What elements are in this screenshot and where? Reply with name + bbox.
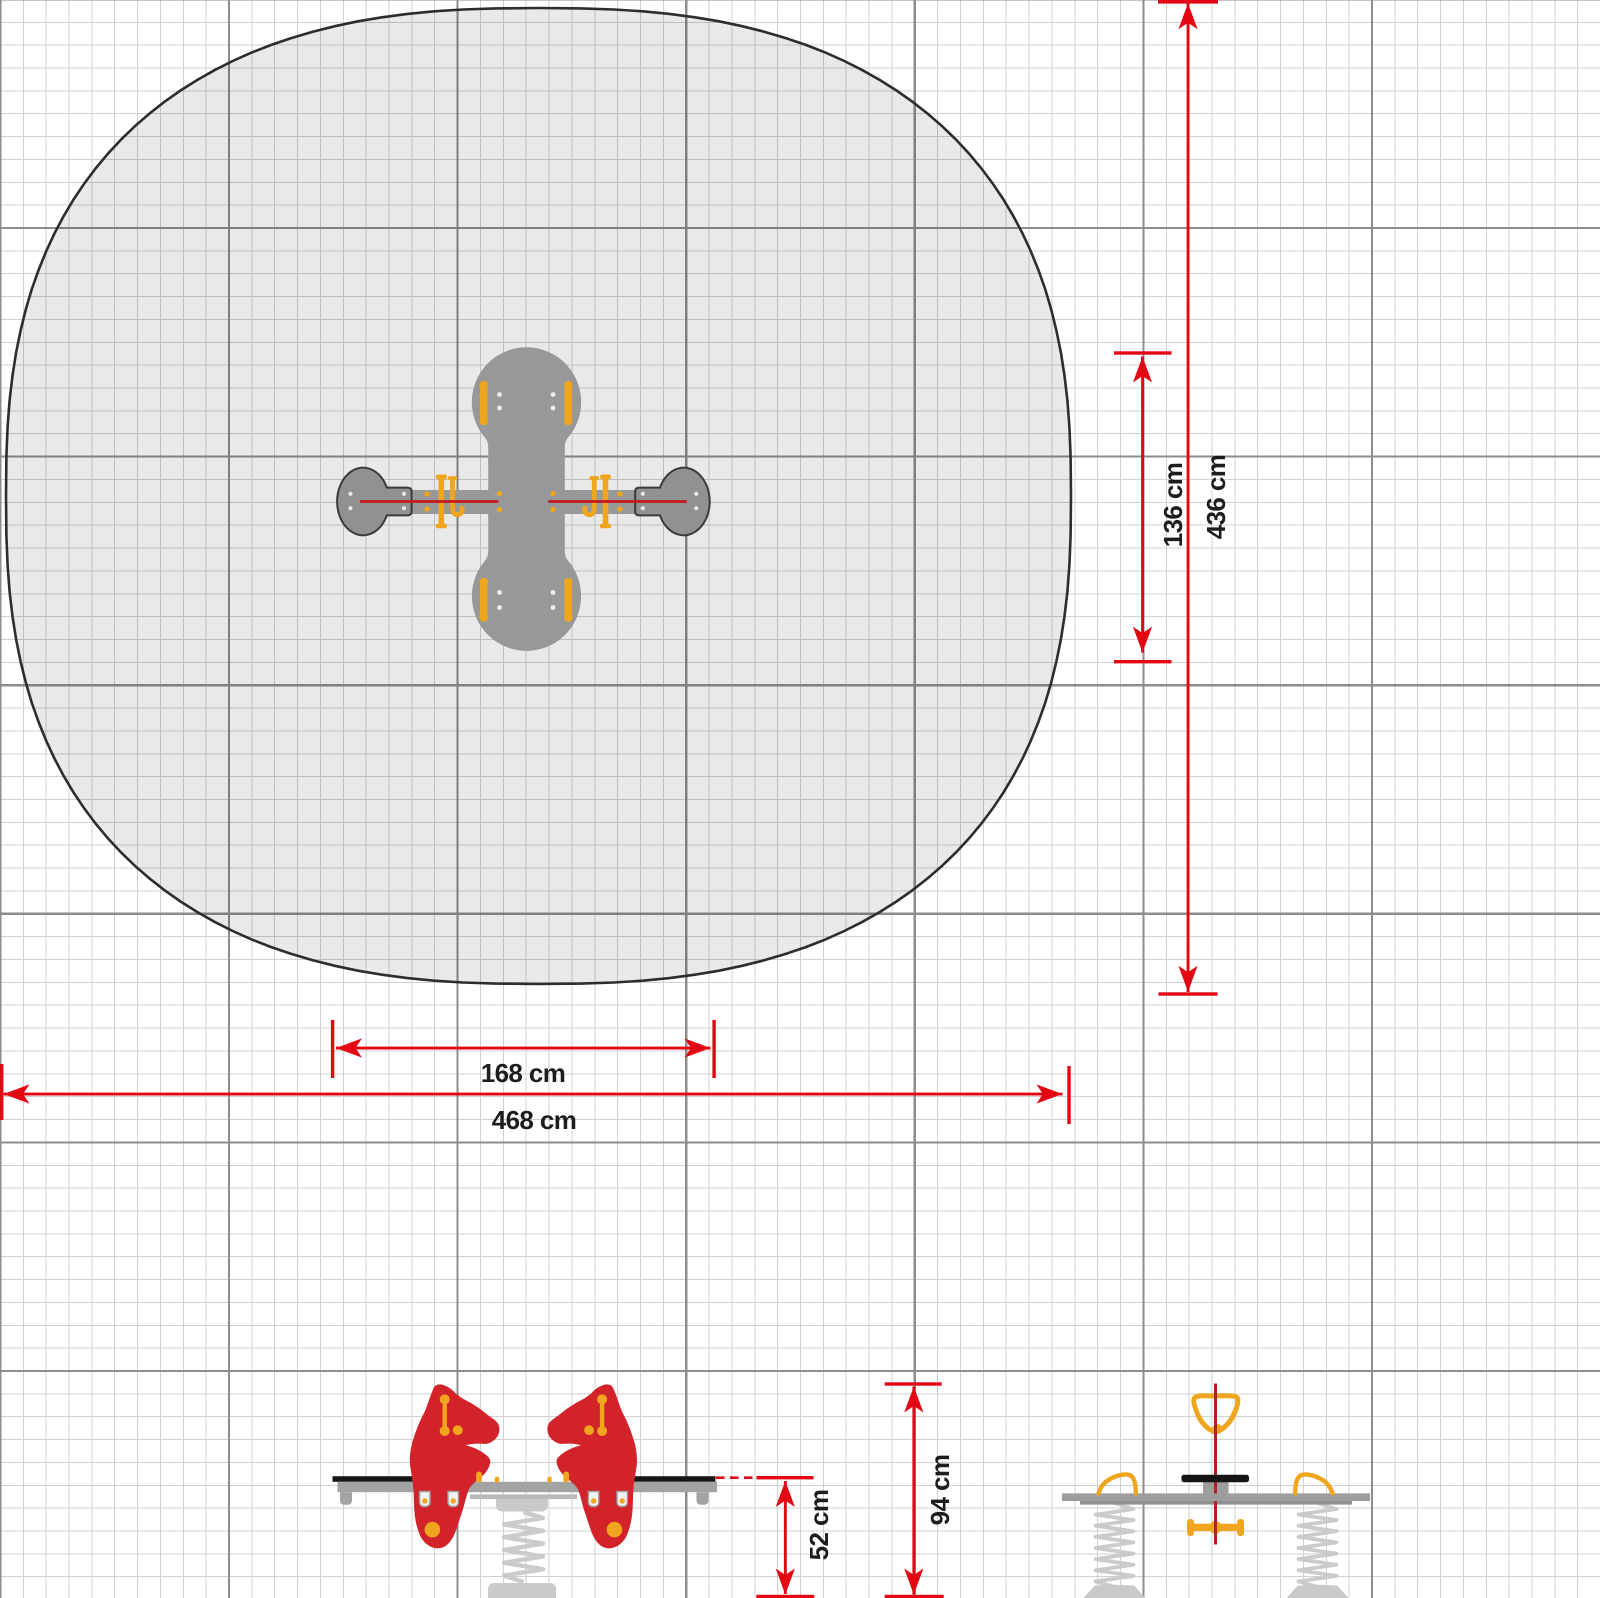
svg-text:436 cm: 436 cm [1201,455,1231,540]
svg-text:136 cm: 136 cm [1158,463,1188,548]
svg-text:52 cm: 52 cm [804,1490,834,1561]
svg-text:468 cm: 468 cm [492,1105,577,1135]
svg-text:94 cm: 94 cm [925,1455,955,1526]
svg-text:168 cm: 168 cm [481,1058,566,1088]
